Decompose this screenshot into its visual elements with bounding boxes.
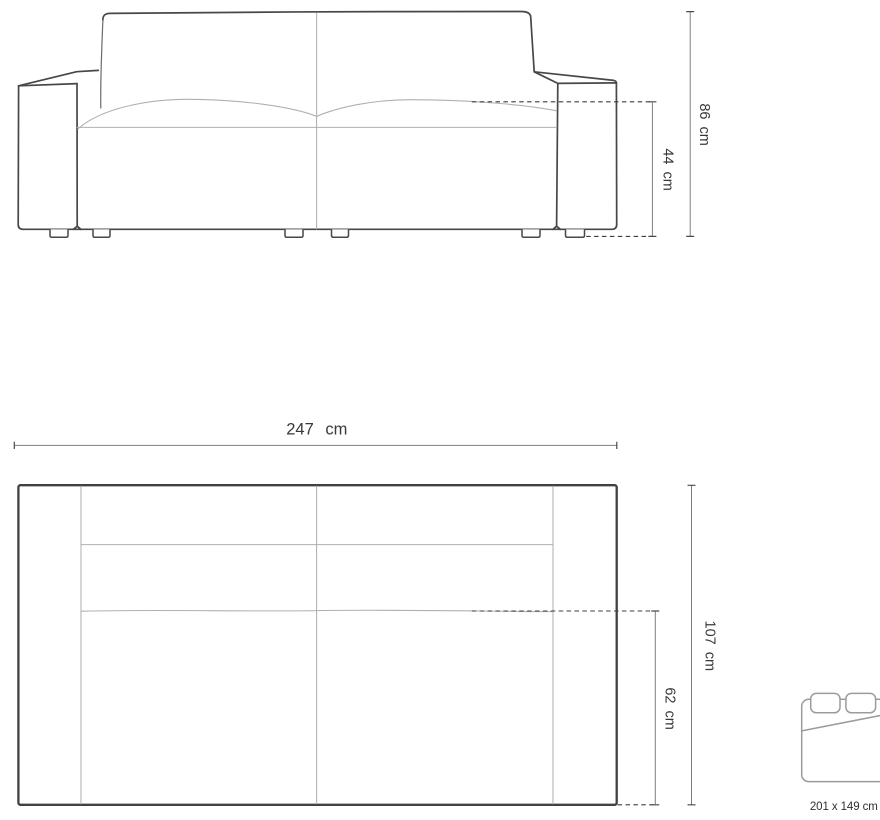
total-width-label: 247 cm bbox=[286, 421, 347, 439]
front-view-dimensions: 86 cm 44 cm bbox=[472, 12, 712, 237]
seat-height-label: 44 cm bbox=[660, 148, 676, 191]
plan-view: 247 cm 107 cm bbox=[14, 421, 717, 805]
sofa-dimension-diagram: 86 cm 44 cm 247 cm bbox=[0, 0, 880, 820]
sofa-leg bbox=[566, 229, 585, 237]
sofa-left-cushion-curve bbox=[78, 99, 317, 129]
sofa-right-armrest-inner-edge bbox=[557, 83, 558, 226]
bed-pillow-right bbox=[846, 693, 876, 712]
total-height-label: 86 cm bbox=[696, 103, 712, 146]
sleeping-area: 201 x 149 cm bbox=[802, 693, 880, 813]
sofa-leg bbox=[332, 229, 349, 237]
sofa-leg bbox=[285, 229, 303, 237]
seat-depth-label: 62 cm bbox=[661, 687, 677, 730]
front-view: 86 cm 44 cm bbox=[18, 11, 712, 237]
sofa-plan-outline bbox=[18, 485, 616, 805]
sleeping-area-label: 201 x 149 cm bbox=[810, 801, 878, 813]
sofa-plan-drawing bbox=[18, 485, 616, 805]
diagram-canvas: 86 cm 44 cm 247 cm bbox=[0, 0, 880, 820]
bed-pillow-left bbox=[811, 693, 840, 712]
sofa-left-armrest-left-edge bbox=[18, 86, 23, 230]
sofa-backrest-outline bbox=[103, 11, 534, 71]
plan-width-dimension: 247 cm bbox=[14, 421, 617, 450]
sofa-leg bbox=[522, 229, 540, 237]
sofa-leg bbox=[50, 229, 68, 237]
bed-icon bbox=[802, 693, 880, 781]
sofa-front-drawing bbox=[18, 11, 617, 237]
sofa-leg bbox=[93, 229, 110, 237]
sofa-right-armrest-front-top bbox=[558, 83, 617, 84]
sofa-right-armrest-right-edge bbox=[612, 83, 617, 229]
sofa-legs bbox=[50, 229, 585, 237]
sofa-backrest-left-edge bbox=[101, 20, 103, 108]
total-depth-label: 107 cm bbox=[702, 621, 718, 672]
